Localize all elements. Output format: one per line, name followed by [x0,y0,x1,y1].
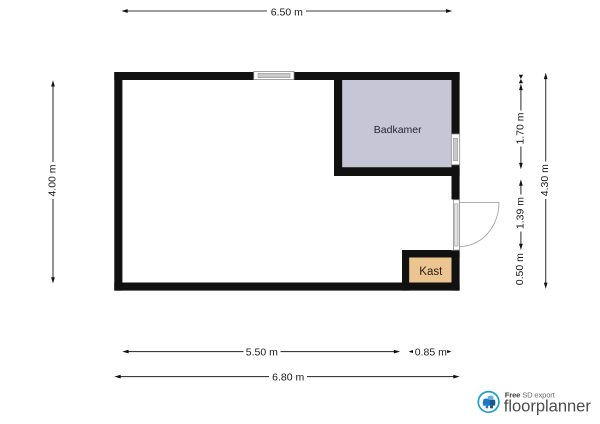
svg-text:6.80 m: 6.80 m [272,371,304,383]
svg-text:4.30 m: 4.30 m [539,164,551,196]
svg-text:Kast: Kast [419,266,443,278]
svg-text:0.50 m: 0.50 m [514,253,526,285]
svg-text:1.39 m: 1.39 m [515,197,527,229]
svg-text:0.85 m: 0.85 m [415,346,447,358]
svg-text:floorplanner: floorplanner [504,397,592,416]
svg-text:Badkamer: Badkamer [374,124,422,136]
svg-text:1.70 m: 1.70 m [515,112,527,144]
svg-text:4.00 m: 4.00 m [47,164,59,196]
svg-text:5.50 m: 5.50 m [246,346,278,358]
svg-text:6.50 m: 6.50 m [271,7,303,19]
